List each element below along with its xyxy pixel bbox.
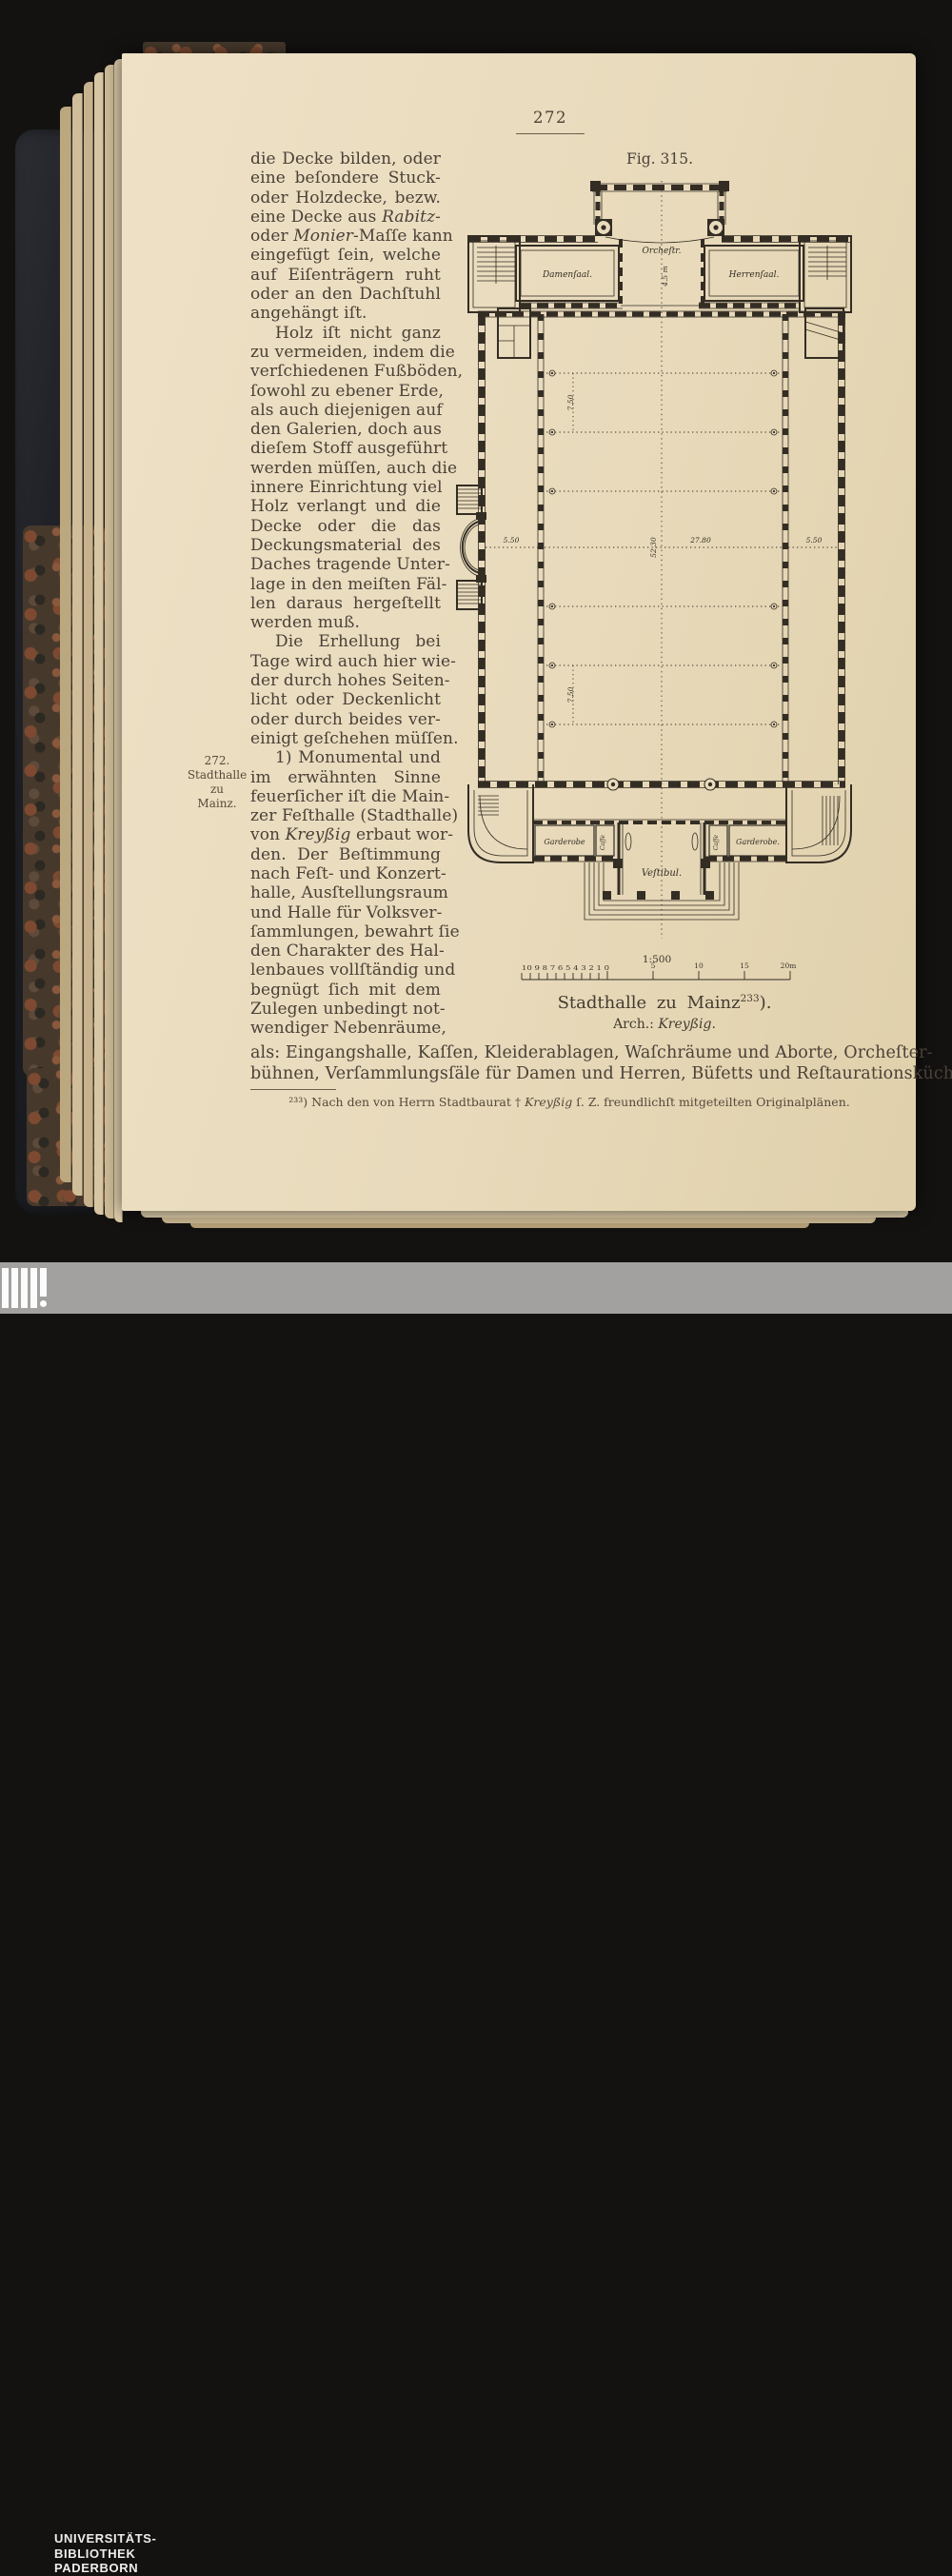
- text-line: Zulegen unbedingt not-: [250, 1000, 441, 1019]
- text-line: angehängt iſt.: [250, 304, 441, 323]
- scale-tick-15: 15: [740, 961, 749, 970]
- text-run: erbaut wor-: [350, 825, 453, 844]
- figure-caption: Stadthalle zu Mainz233).: [522, 993, 807, 1013]
- figure-architect: Arch.: Kreyßig.: [522, 1017, 807, 1032]
- text-run: oder: [250, 227, 293, 246]
- library-watermark-band: UNIVERSITÄTS- BIBLIOTHEK PADERBORN: [0, 1262, 952, 1314]
- text-line: zer Feſthalle (Stadthalle): [250, 806, 441, 825]
- text-line: nach Feſt- und Konzert-: [250, 864, 441, 883]
- text-line: Deckungsmaterial des: [250, 536, 441, 555]
- dim-bay-upper: 7.50: [566, 394, 575, 410]
- caption-title: Stadthalle zu Mainz: [558, 993, 741, 1013]
- scanned-book-page: { "header": { "page_number": "272", "fig…: [0, 0, 952, 1314]
- logo-bar: [40, 1268, 47, 1297]
- text-line: der durch hohes Seiten-: [250, 671, 441, 690]
- text-run: ²³³) Nach den von Herrn Stadtbaurat †: [288, 1095, 525, 1109]
- text-line: als: Eingangshalle, Kaſſen, Kleiderablag…: [250, 1043, 863, 1064]
- room-label-vestibul: Veſtibul.: [642, 868, 682, 879]
- text-line: den Charakter des Hal-: [250, 941, 441, 961]
- text-run: -Maſſe kann: [353, 227, 453, 246]
- logo-bar: [2, 1268, 9, 1308]
- text-run: eine Decke aus: [250, 208, 382, 227]
- text-line: werden muß.: [250, 613, 441, 632]
- text-line: von Kreyßig erbaut wor-: [250, 825, 441, 844]
- margin-note-line: Stadthalle: [177, 768, 257, 783]
- dim-hall-width: 27.80: [689, 536, 711, 545]
- dim-orchestra-depth: 4.5 m: [661, 266, 669, 287]
- text-run: ſ. Z. freundlichſt mitgeteilten Original…: [572, 1095, 850, 1109]
- text-line: und Halle für Volksver-: [250, 903, 441, 922]
- text-line: feuerſicher iſt die Main-: [250, 787, 441, 806]
- library-name: UNIVERSITÄTS- BIBLIOTHEK PADERBORN: [54, 2531, 156, 2576]
- text-line: im erwähnten Sinne: [250, 768, 441, 787]
- text-line: oder an den Dachſtuhl: [250, 285, 441, 304]
- text-run: -: [435, 208, 441, 227]
- text-line: lenbaues vollſtändig und: [250, 961, 441, 980]
- text-line: den. Der Beſtimmung: [250, 845, 441, 864]
- page-edge: [94, 72, 104, 1215]
- page-number: 272: [503, 109, 598, 127]
- room-label-herrensaal: Herrenſaal.: [728, 270, 780, 280]
- scale-bar: 1:500 10 9 8 7 6 5 4 3 2 1 0 5 10 15 20m: [514, 954, 800, 988]
- dim-aisle-left: 5.50: [504, 536, 520, 545]
- scale-tick-20m: 20m: [781, 961, 797, 970]
- scale-tick-10: 10: [694, 961, 704, 970]
- text-line: 1) Monumental und: [250, 748, 441, 767]
- text-line: die Decke bilden, oder: [250, 149, 441, 168]
- caption-footnote-ref: 233: [741, 993, 760, 1004]
- margin-note-line: 272.: [177, 754, 257, 768]
- text-line: Die Erhellung bei: [250, 632, 441, 651]
- text-line: len daraus hergeſtellt: [250, 594, 441, 613]
- bay-lines: 7.50 7.50: [546, 370, 780, 727]
- text-line: ſowohl zu ebener Erde,: [250, 382, 441, 401]
- text-line: wendiger Nebenräume,: [250, 1019, 441, 1038]
- page-number-rule: [516, 133, 585, 134]
- italic-term: Rabitz: [382, 208, 435, 227]
- room-label-garderobe-left: Garderobe: [544, 838, 585, 846]
- page-edge: [105, 65, 114, 1219]
- footnote-rule: [250, 1089, 336, 1090]
- text-line: als auch diejenigen auf: [250, 401, 441, 420]
- bottom-band: Garderobe Caſſe Caſſe Garderobe. Veſtibu…: [468, 784, 851, 895]
- text-line: eine beſondere Stuck-: [250, 168, 441, 188]
- apse: [457, 485, 486, 609]
- text-line: werden müſſen, auch die: [250, 459, 441, 478]
- page-bottom-edge: [141, 1211, 908, 1218]
- book-page: 272 Fig. 315. die Decke bilden, oder ein…: [122, 53, 916, 1211]
- room-label-garderobe-right: Garderobe.: [736, 838, 780, 846]
- text-run: .: [711, 1017, 715, 1032]
- text-run: Arch.:: [613, 1017, 658, 1032]
- text-line: oder durch beides ver-: [250, 710, 441, 729]
- text-line: zu vermeiden, indem die: [250, 343, 441, 362]
- logo-bar: [11, 1268, 18, 1308]
- room-label-casse-left: Caſſe: [600, 834, 606, 850]
- text-line: oder Holzdecke, bezw.: [250, 188, 441, 208]
- caption-close: ).: [760, 993, 772, 1013]
- text-line: Holz iſt nicht ganz: [250, 324, 441, 343]
- scale-tick-5: 5: [651, 961, 656, 970]
- text-line: lage in den meiſten Fäl-: [250, 575, 441, 594]
- text-line: Decke oder die das: [250, 517, 441, 536]
- text-line: bühnen, Verſammlungsſäle für Damen und H…: [250, 1064, 863, 1085]
- margin-note-line: zu: [177, 783, 257, 797]
- logo-bar: [21, 1268, 28, 1308]
- page-edge: [84, 82, 93, 1207]
- italic-term: Kreyßig: [286, 825, 351, 844]
- room-label-damensaal: Damenſaal.: [542, 270, 592, 280]
- scale-minor-numerals: 10 9 8 7 6 5 4 3 2 1 0: [522, 965, 609, 972]
- text-line: Holz verlangt und die: [250, 497, 441, 516]
- dim-bay-lower: 7.50: [566, 686, 575, 703]
- dim-aisle-right: 5.50: [806, 536, 823, 545]
- logo-bar: [30, 1268, 37, 1308]
- page-bottom-edge: [190, 1223, 809, 1228]
- footnote: ²³³) Nach den von Herrn Stadtbaurat † Kr…: [260, 1095, 879, 1109]
- text-line: halle, Ausſtellungsraum: [250, 883, 441, 902]
- text-line: licht oder Deckenlicht: [250, 690, 441, 709]
- text-line: auf Eiſenträgern ruht: [250, 266, 441, 285]
- left-text-column: die Decke bilden, oder eine beſondere St…: [250, 149, 441, 1039]
- scale-ratio: 1:500: [643, 954, 671, 965]
- text-line: oder Monier-Maſſe kann: [250, 227, 441, 246]
- logo-dot: [40, 1300, 47, 1307]
- library-name-line: PADERBORN: [54, 2561, 156, 2576]
- text-run: von: [250, 825, 286, 844]
- full-width-text: als: Eingangshalle, Kaſſen, Kleiderablag…: [250, 1043, 863, 1085]
- text-line: dieſem Stoff ausgeführt: [250, 439, 441, 458]
- italic-term: Monier: [293, 227, 353, 246]
- text-line: den Galerien, doch aus: [250, 420, 441, 439]
- text-line: Daches tragende Unter-: [250, 555, 441, 574]
- text-line: verſchiedenen Fußböden,: [250, 362, 441, 381]
- room-label-casse-right: Caſſe: [713, 834, 720, 850]
- text-line: eingefügt ſein, welche: [250, 246, 441, 265]
- italic-term: Kreyßig: [525, 1095, 572, 1109]
- library-name-line: BIBLIOTHEK: [54, 2546, 156, 2562]
- text-line: eine Decke aus Rabitz-: [250, 208, 441, 227]
- text-line: begnügt ſich mit dem: [250, 981, 441, 1000]
- dim-hall-length: 52.30: [649, 537, 658, 558]
- text-line: Tage wird auch hier wie-: [250, 652, 441, 671]
- library-name-line: UNIVERSITÄTS-: [54, 2531, 156, 2546]
- margin-note: 272. Stadthalle zu Mainz.: [177, 754, 257, 811]
- floor-plan-figure: Damenſaal. Orcheſtr. 4.5 m Herrenſaal.: [446, 179, 864, 941]
- page-edge: [72, 93, 83, 1196]
- upper-wings: Damenſaal. Orcheſtr. 4.5 m Herrenſaal.: [468, 236, 851, 359]
- text-line: innere Einrichtung viel: [250, 478, 441, 497]
- room-label-orchestra: Orcheſtr.: [643, 247, 682, 256]
- architect-name: Kreyßig: [658, 1017, 711, 1032]
- margin-note-line: Mainz.: [177, 797, 257, 811]
- figure-label: Fig. 315.: [607, 150, 712, 168]
- stage-block: [590, 181, 729, 243]
- text-line: ſammlungen, bewahrt ſie: [250, 922, 441, 941]
- text-line: einigt geſchehen müſſen.: [250, 729, 441, 748]
- page-edge: [60, 107, 71, 1182]
